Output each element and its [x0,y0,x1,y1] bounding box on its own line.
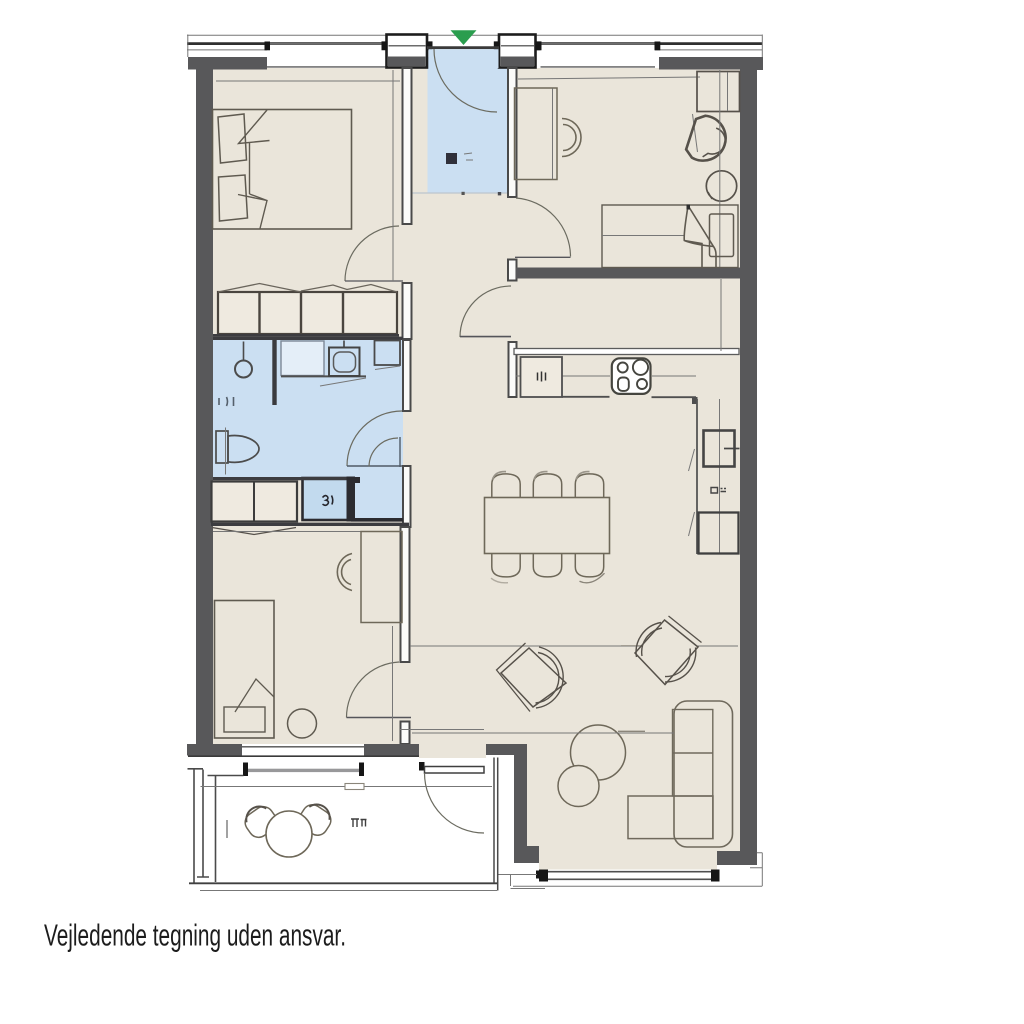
svg-text:Vejledende tegning uden ansvar: Vejledende tegning uden ansvar. [44,918,346,953]
